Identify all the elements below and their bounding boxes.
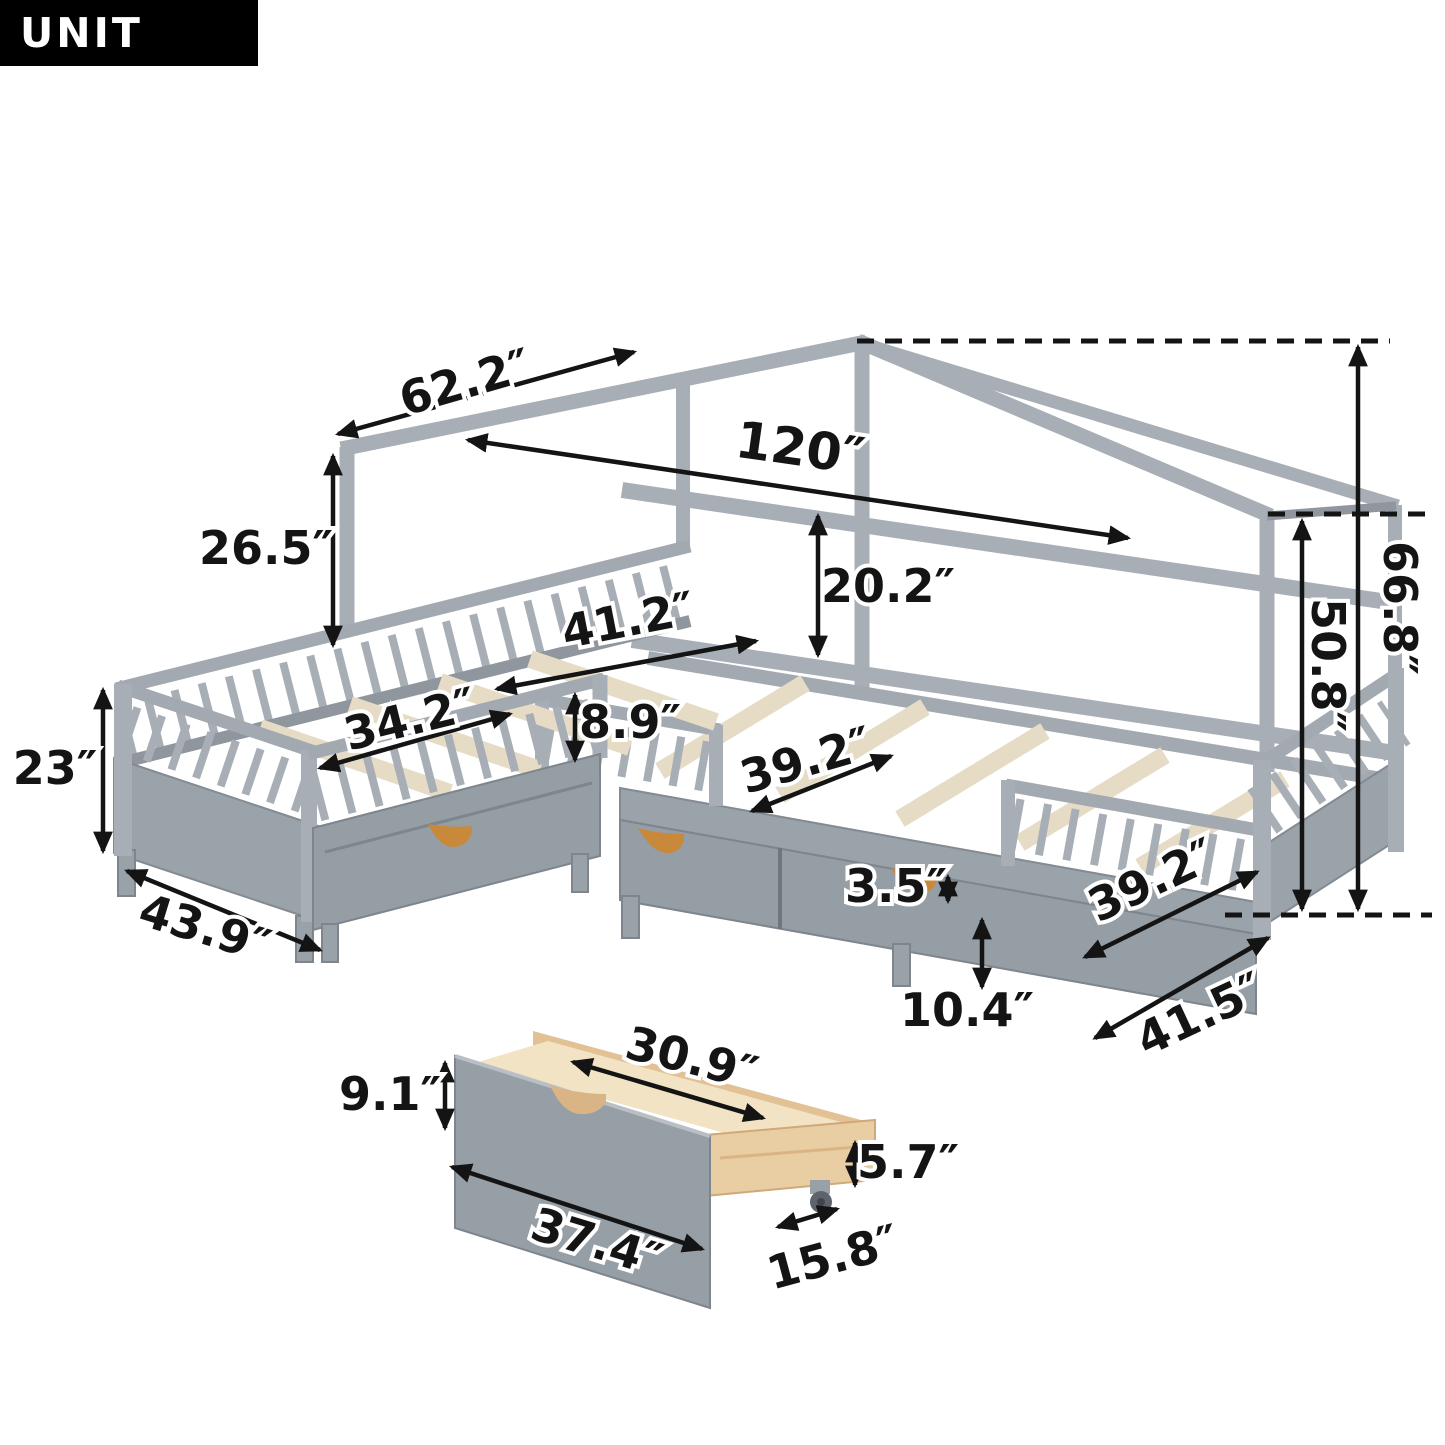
dim-footboard-height-label: 23″ xyxy=(13,741,98,795)
product-dimension-diagram: UNIT INCH xyxy=(0,0,1445,1445)
dim-eave-post-height-label: 26.5″ xyxy=(199,521,333,575)
dim-drawer-depth-arrow xyxy=(778,1209,837,1227)
roof-beam-ridge-back xyxy=(860,343,1398,506)
dim-floor-to-eave-label: 50.8″ xyxy=(1301,598,1355,732)
back-wall-rail-upper xyxy=(622,490,1395,603)
right-bed-leg xyxy=(622,896,639,938)
dim-drawer-box-height-label: 5.7″ xyxy=(857,1135,959,1189)
bed-diagram-canvas: 62.2″ 120″ 26.5″ 20.2″ 41.2″ 34.2″ 8.9″ … xyxy=(0,0,1445,1445)
dim-underbed-clearance-label: 10.4″ xyxy=(900,983,1034,1037)
left-bed-leg xyxy=(322,924,338,962)
dim-guardrail-height-label: 8.9″ xyxy=(579,695,681,749)
dim-slat-to-drawer-gap-label: 3.5″ xyxy=(845,859,947,913)
dim-overall-length-label: 120″ xyxy=(732,411,868,487)
back-wall-rail-lower xyxy=(632,640,1395,753)
right-bed-front-guardrail xyxy=(1006,780,1258,868)
left-bed-leg xyxy=(572,854,588,892)
dim-floor-to-peak-label: 66.8″ xyxy=(1373,541,1427,675)
dim-wall-rail-gap-label: 20.2″ xyxy=(821,559,955,613)
dim-drawer-front-height-label: 9.1″ xyxy=(339,1067,441,1121)
caster-wheel-hub xyxy=(817,1198,825,1206)
right-bed-leg xyxy=(893,944,910,986)
